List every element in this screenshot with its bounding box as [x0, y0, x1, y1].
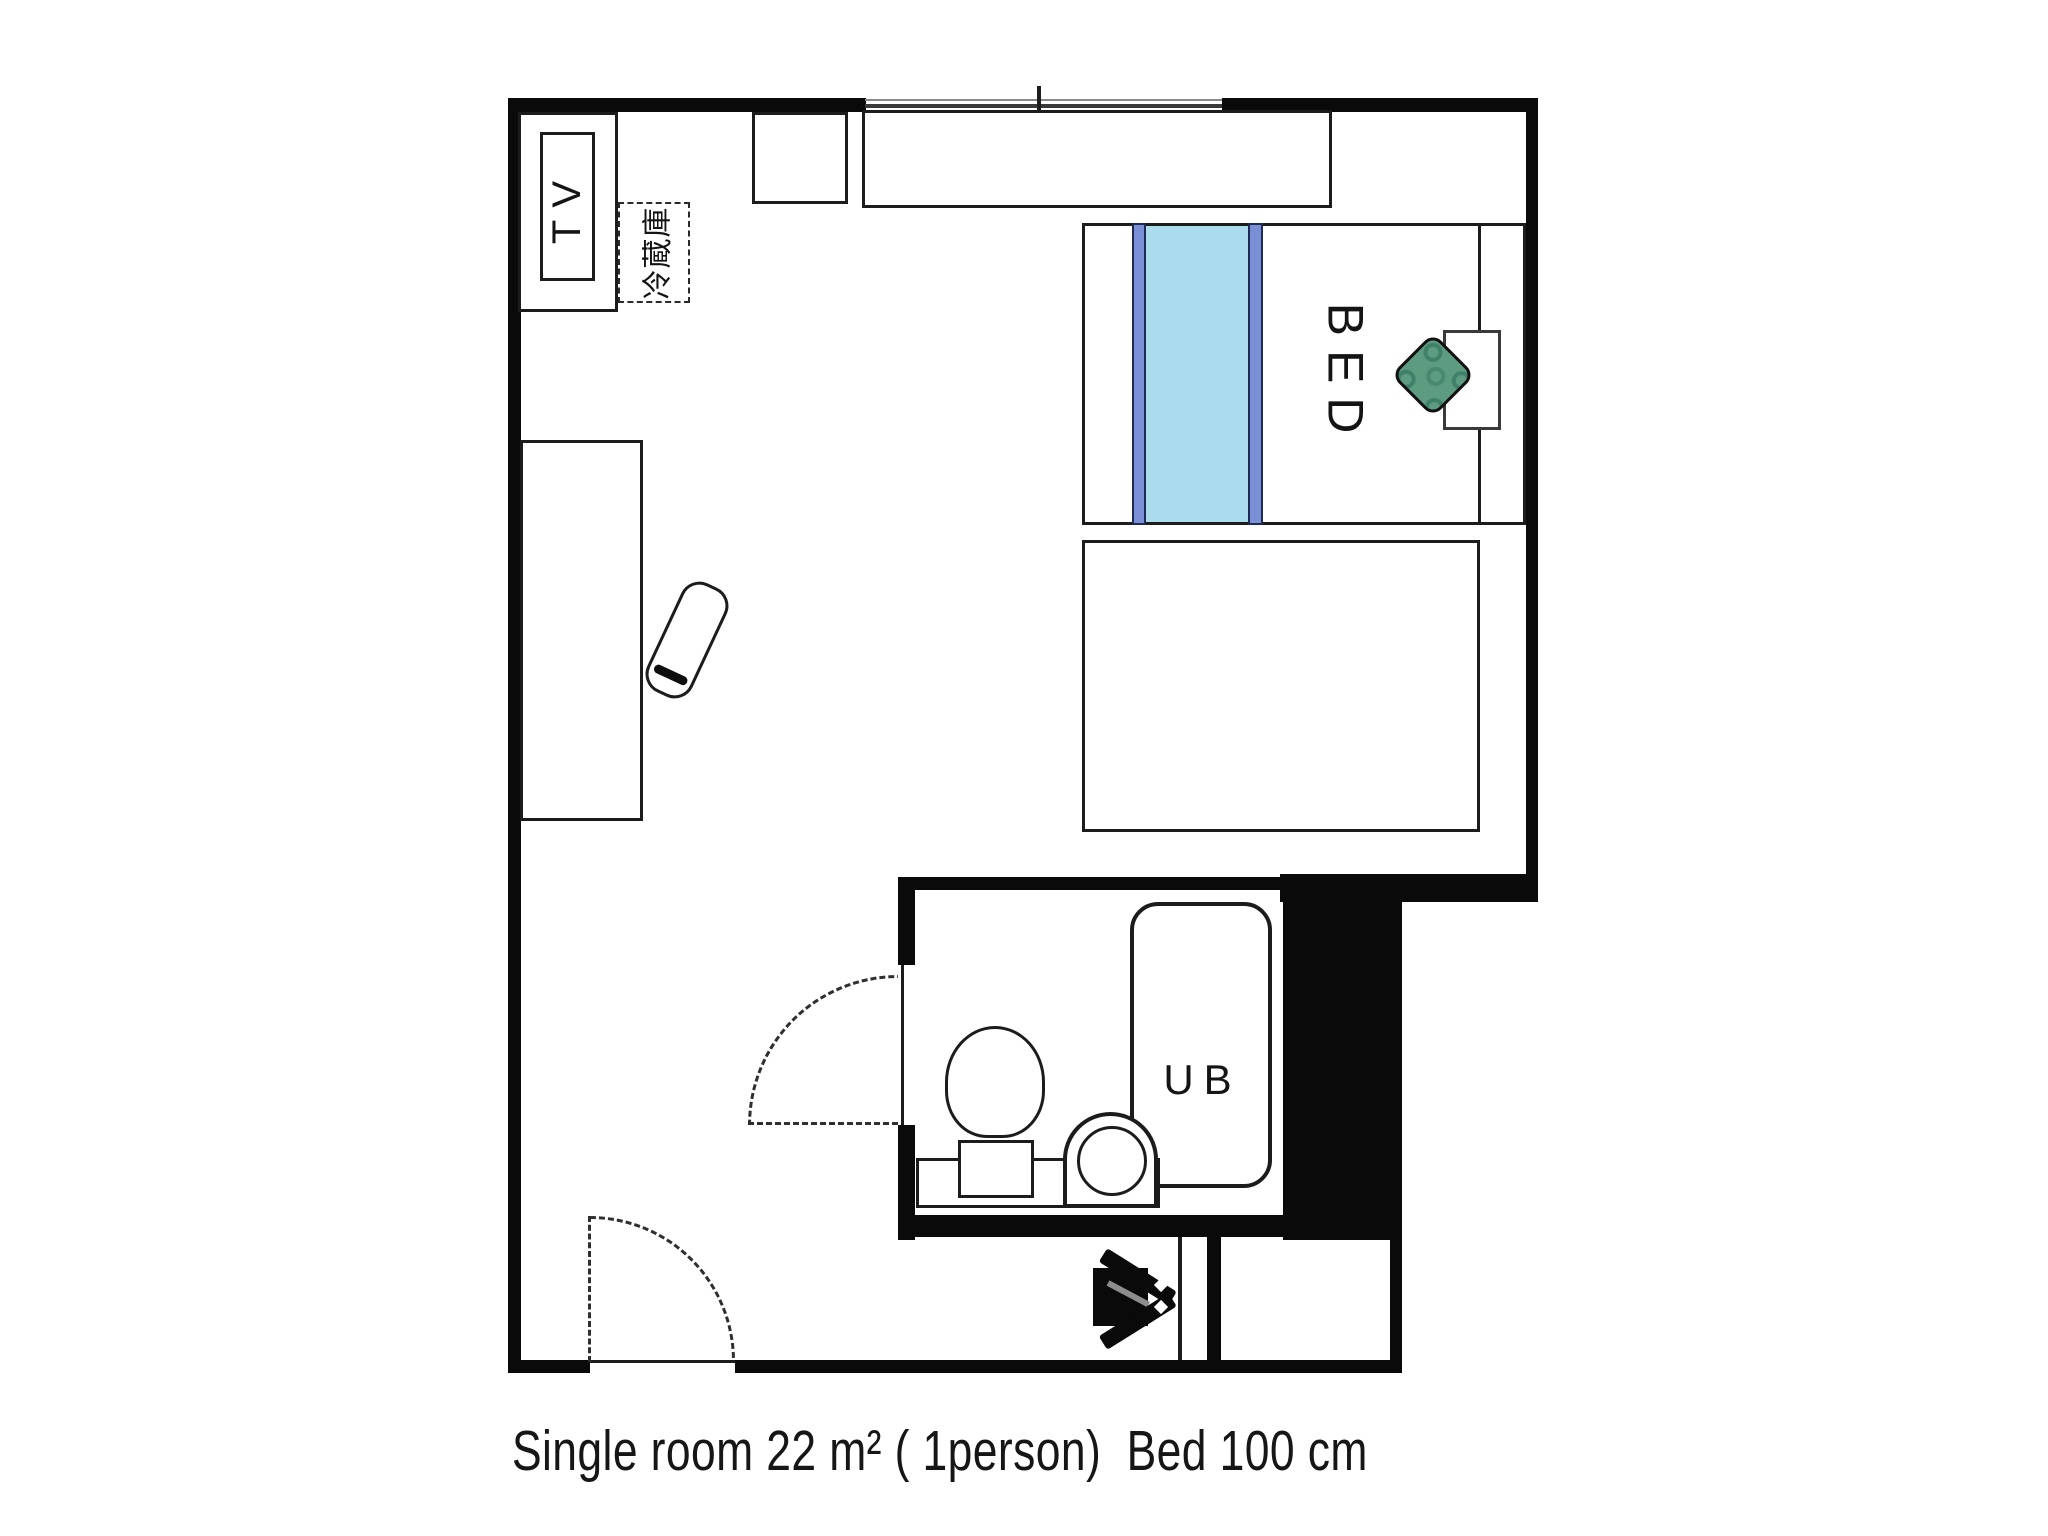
desk	[520, 440, 643, 821]
bathroom-door-leaf	[748, 1122, 898, 1125]
wall-shelf-long	[862, 110, 1332, 208]
wall-closet-small	[752, 112, 848, 204]
window-line-inner	[865, 104, 1222, 108]
sink-bowl	[1077, 1126, 1147, 1196]
refrigerator-dashed-box: 冷蔵庫	[618, 202, 690, 303]
wall-nook-right	[1390, 1240, 1402, 1373]
floor-plan: TV 冷蔵庫 BED UB	[0, 0, 2048, 1536]
bed-runner-dark-right	[1248, 223, 1263, 525]
wall-mass	[1283, 874, 1402, 1240]
unit-bath-label: UB	[1163, 1056, 1241, 1104]
window-line-outer	[865, 99, 1222, 101]
bathroom-wall-bottom	[898, 1215, 1283, 1237]
entrance-slot-right-bar	[1207, 1237, 1221, 1360]
bathroom-wall-left-upper	[898, 877, 915, 965]
wall-bottom-right	[1207, 1360, 1402, 1373]
entrance-door-leaf	[588, 1216, 591, 1362]
wall-right	[1526, 98, 1538, 902]
wall-bottom-center	[735, 1360, 1207, 1373]
caption: Single room 22 m² ( 1person) Bed 100 cm	[512, 1418, 1368, 1484]
wall-bottom-left	[508, 1360, 590, 1373]
bathroom-door-opening-line	[901, 965, 904, 1125]
entrance-arrow-symbol	[1090, 1240, 1182, 1358]
window-center-tick	[1037, 86, 1041, 112]
tv-label: TV	[545, 169, 590, 244]
unit-bath-label-box: UB	[1140, 1045, 1265, 1115]
refrigerator-label: 冷蔵庫	[632, 206, 676, 299]
bed-runner-dark-left	[1132, 223, 1146, 525]
toilet-tank	[958, 1140, 1034, 1198]
bed-lower-section	[1082, 540, 1480, 832]
bathroom-wall-top	[898, 877, 1283, 890]
tv-unit: TV	[540, 132, 595, 281]
wall-top-left-segment	[508, 98, 866, 112]
toilet-bowl	[945, 1026, 1045, 1138]
bed-runner-light	[1146, 226, 1248, 522]
desk-chair	[639, 575, 735, 705]
bed-label: BED	[1316, 303, 1374, 448]
bed-label-box: BED	[1295, 275, 1395, 475]
